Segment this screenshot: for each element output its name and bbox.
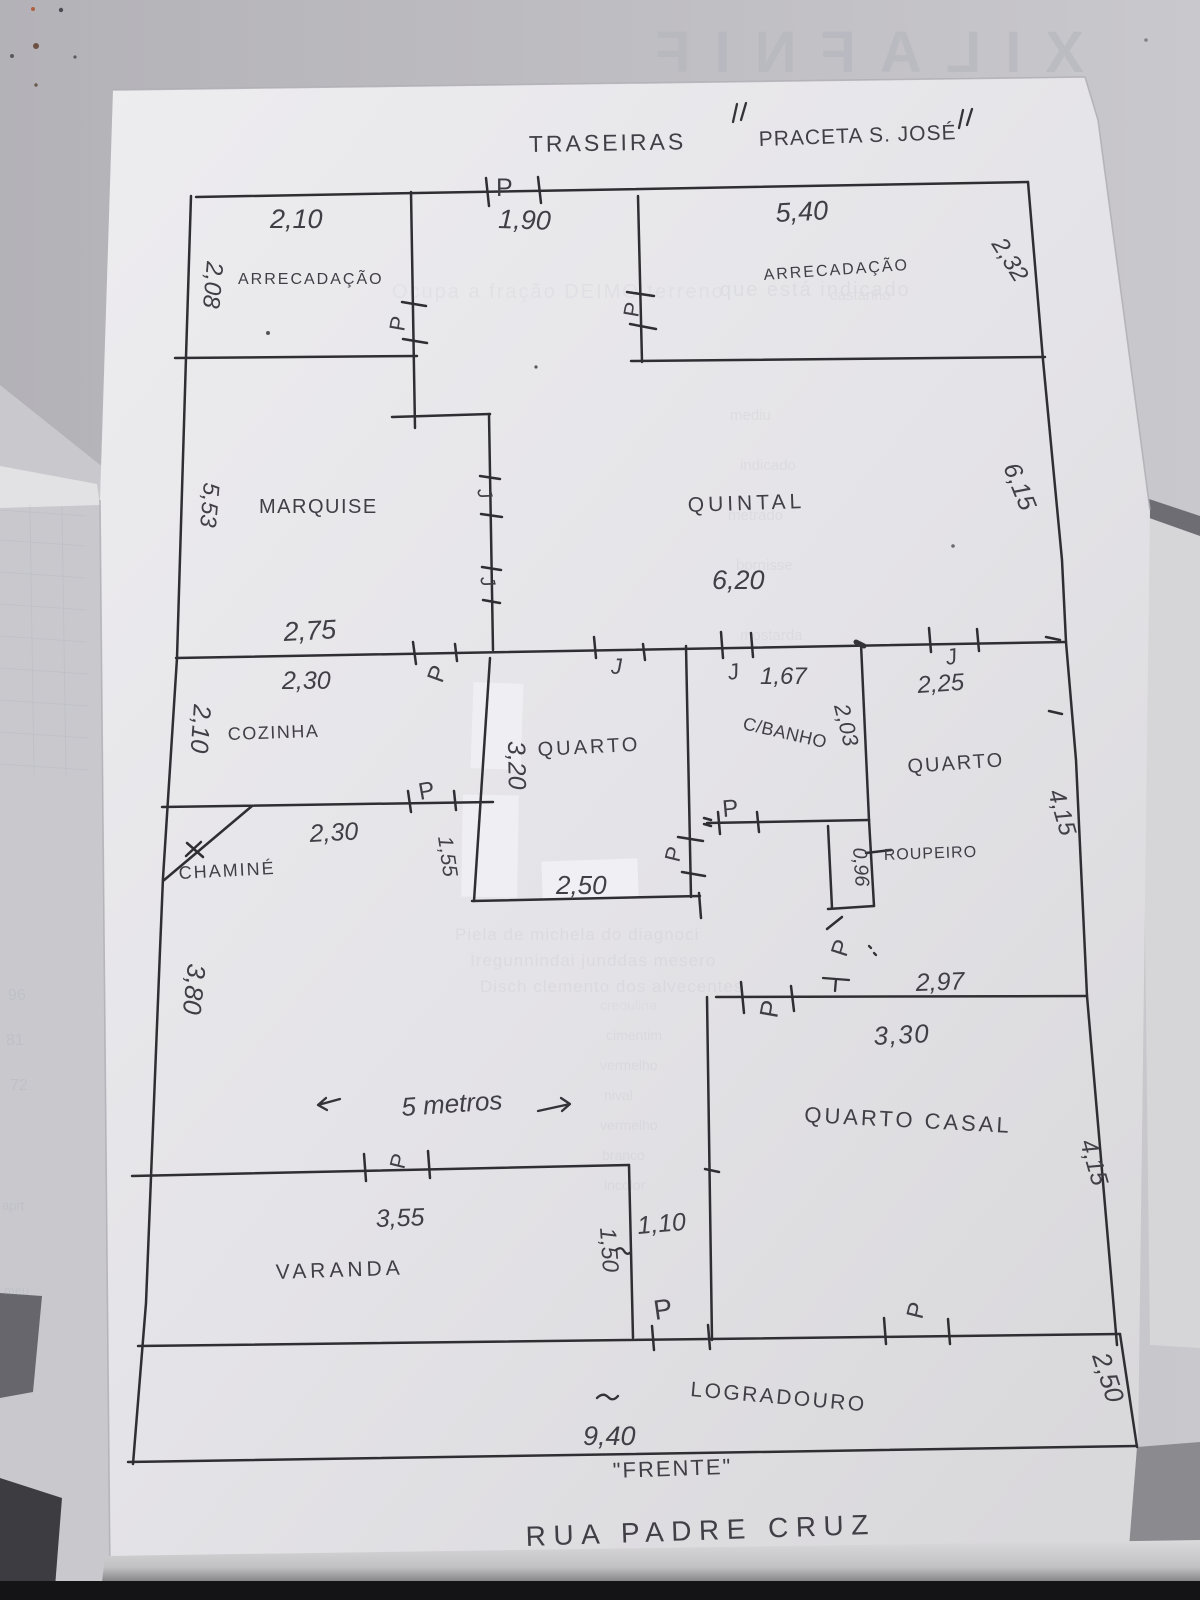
svg-text:P: P [496, 174, 513, 202]
svg-text:J: J [610, 654, 623, 679]
svg-text:meu: meu [4, 1283, 29, 1298]
svg-text:3,55: 3,55 [375, 1203, 425, 1233]
svg-text:2,10: 2,10 [269, 204, 323, 234]
svg-text:branco: branco [602, 1147, 645, 1163]
svg-text:aprt: aprt [2, 1198, 25, 1213]
svg-text:COZINHA: COZINHA [227, 721, 319, 744]
svg-text:9,40: 9,40 [583, 1421, 636, 1451]
svg-text:vermelho: vermelho [600, 1057, 658, 1073]
svg-text:2,97: 2,97 [914, 967, 966, 997]
svg-text:XILAFNIF: XILAFNIF [631, 20, 1084, 85]
svg-text:3,30: 3,30 [873, 1018, 931, 1051]
svg-text:Disch clemento dos alvecentes: Disch clemento dos alvecentes [480, 977, 743, 996]
svg-text:QUINTAL: QUINTAL [687, 490, 805, 517]
svg-text:2,10: 2,10 [185, 703, 216, 755]
svg-text:1,67: 1,67 [760, 663, 808, 690]
svg-text:6,20: 6,20 [712, 565, 765, 595]
svg-text:1,10: 1,10 [636, 1208, 687, 1240]
svg-text:3,20: 3,20 [502, 741, 531, 790]
svg-text:5,40: 5,40 [775, 195, 829, 228]
svg-text:1,50: 1,50 [595, 1227, 624, 1274]
svg-text:castanho: castanho [830, 287, 891, 304]
svg-text:ROUPEIRO: ROUPEIRO [884, 844, 978, 864]
svg-text:1,90: 1,90 [498, 204, 552, 236]
svg-text:cimentim: cimentim [606, 1027, 662, 1043]
svg-text:nival: nival [604, 1087, 633, 1103]
svg-text:"FRENTE": "FRENTE" [612, 1454, 732, 1483]
svg-text:2,30: 2,30 [281, 667, 331, 695]
svg-text:VARANDA: VARANDA [275, 1257, 404, 1284]
svg-text:MARQUISE: MARQUISE [259, 496, 378, 518]
svg-text:2,08: 2,08 [197, 259, 228, 310]
svg-text:Ocupa a fração DEIMO terreno: Ocupa a fração DEIMO terreno [392, 281, 725, 303]
svg-text:Piela de michela do diagnoci: Piela de michela do diagnoci [455, 925, 699, 944]
svg-text:vermelho: vermelho [600, 1117, 658, 1133]
svg-text:2,50: 2,50 [555, 870, 607, 900]
svg-text:TRASEIRAS: TRASEIRAS [529, 128, 687, 157]
svg-text:5,53: 5,53 [195, 482, 225, 529]
svg-text:incolor: incolor [604, 1177, 646, 1193]
svg-text:indicado: indicado [740, 457, 796, 474]
svg-text:96: 96 [8, 987, 26, 1004]
svg-text:2,25: 2,25 [916, 669, 966, 699]
svg-text:2,75: 2,75 [282, 614, 338, 647]
svg-text:P: P [721, 795, 739, 823]
svg-text:2,30: 2,30 [308, 817, 359, 848]
svg-text:mediu: mediu [730, 407, 771, 424]
svg-text:3,80: 3,80 [177, 962, 212, 1016]
svg-text:Iregunnindai junddas mesero: Iregunnindai junddas mesero [470, 951, 716, 970]
svg-text:72: 72 [10, 1077, 28, 1094]
svg-text:0,96: 0,96 [848, 847, 873, 888]
svg-text:81: 81 [6, 1032, 24, 1049]
svg-text:mostarda: mostarda [740, 627, 803, 644]
svg-text:creoulina: creoulina [600, 997, 657, 1013]
svg-text:ARRECADAÇÃO: ARRECADAÇÃO [238, 268, 384, 288]
